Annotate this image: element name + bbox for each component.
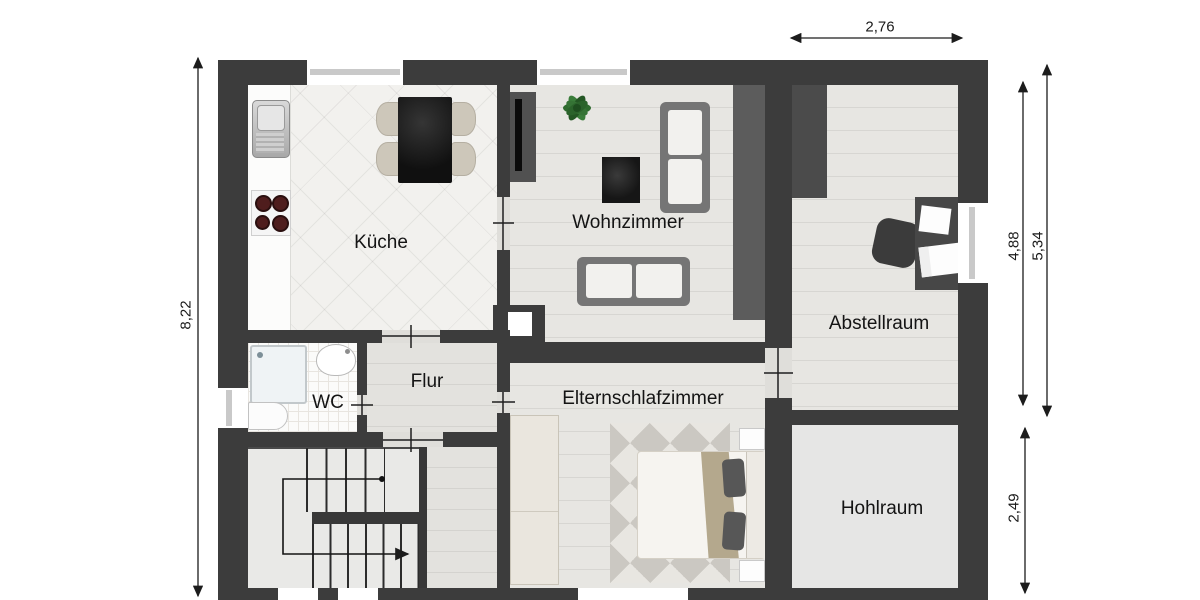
desk xyxy=(915,197,958,290)
window xyxy=(578,588,688,600)
wall-left xyxy=(218,60,248,600)
wall-unit xyxy=(733,85,765,320)
dimension-label-right-outer: 5,34 xyxy=(1030,231,1047,260)
wall-schlafzimmer-nord xyxy=(510,342,765,363)
staircase-landing-wall xyxy=(312,512,420,524)
paper xyxy=(919,205,952,234)
burner xyxy=(272,215,289,232)
wall-wc-sued xyxy=(218,432,510,447)
wall-kueche-sued xyxy=(248,330,497,343)
stove-cooktop xyxy=(251,190,291,236)
door-flur-treppe xyxy=(383,432,443,447)
wall-niche xyxy=(508,312,532,336)
dimension-label-right-bottom: 2,49 xyxy=(1006,493,1023,522)
dimension-label-right-inner: 4,88 xyxy=(1006,231,1023,260)
sofa xyxy=(660,102,710,213)
wall-right xyxy=(958,60,988,600)
coffee-table xyxy=(602,157,640,203)
window-sill xyxy=(969,207,975,279)
tv xyxy=(515,99,522,171)
room-label-flur: Flur xyxy=(411,371,444,393)
dimension-label-top: 2,76 xyxy=(865,19,894,36)
sofa-cushion xyxy=(586,264,632,298)
wall-wc-flur xyxy=(357,343,367,432)
pillow xyxy=(722,458,747,497)
nightstand xyxy=(739,560,765,582)
storage-closet xyxy=(792,82,827,198)
staircase-upper-flight xyxy=(306,448,385,512)
toilet xyxy=(248,402,288,430)
burner xyxy=(255,195,272,212)
door-flur-schlafzimmer xyxy=(497,392,510,413)
sink-drainboard xyxy=(256,133,284,153)
window xyxy=(218,388,248,428)
wall-hohlraum-nord xyxy=(792,410,958,425)
window xyxy=(338,588,378,600)
lower-hall-floor xyxy=(427,447,497,588)
dimension-label-left: 8,22 xyxy=(178,300,195,329)
double-bed xyxy=(637,451,765,559)
door-schlafzimmer-abstellraum xyxy=(765,348,792,398)
door-kueche-wohnzimmer xyxy=(497,197,510,250)
staircase-side-wall xyxy=(419,447,427,588)
wall-wohnzimmer-abstellraum xyxy=(765,60,792,600)
dining-table xyxy=(398,97,452,183)
dining-chair xyxy=(450,142,476,176)
window-sill xyxy=(226,390,232,426)
tv-sideboard xyxy=(508,92,536,182)
room-label-kueche: Küche xyxy=(354,232,408,254)
door-wc-flur xyxy=(357,395,367,415)
pillow xyxy=(722,511,747,550)
washbasin xyxy=(316,344,356,376)
headboard xyxy=(746,452,765,558)
floor-plan: Küche Wohnzimmer Abstellraum Flur WC Elt… xyxy=(0,0,1200,600)
basin-faucet xyxy=(345,349,350,354)
window-sill xyxy=(310,69,400,75)
sofa-cushion xyxy=(668,159,702,204)
room-label-elternschlafzimmer: Elternschlafzimmer xyxy=(562,388,724,410)
wall-flur-schlafzimmer xyxy=(497,330,510,588)
sink-basin xyxy=(257,105,285,131)
window-sill xyxy=(540,69,627,75)
burner xyxy=(272,195,289,212)
door-kueche-flur xyxy=(382,330,440,343)
wardrobe-divider xyxy=(511,511,558,512)
nightstand xyxy=(739,428,765,450)
room-label-hohlraum: Hohlraum xyxy=(841,498,923,520)
room-label-abstellraum: Abstellraum xyxy=(829,313,929,335)
room-label-wohnzimmer: Wohnzimmer xyxy=(572,212,684,234)
window xyxy=(278,588,318,600)
sofa xyxy=(577,257,690,306)
paper xyxy=(918,243,963,278)
shower-head xyxy=(257,352,263,358)
dining-chair xyxy=(450,102,476,136)
wardrobe xyxy=(510,415,559,585)
room-label-wc: WC xyxy=(312,392,344,414)
burner xyxy=(255,215,270,230)
staircase-lower-flight xyxy=(312,524,419,588)
sofa-cushion xyxy=(636,264,682,298)
kitchen-sink xyxy=(252,100,290,158)
shower xyxy=(250,345,307,404)
sofa-cushion xyxy=(668,110,702,155)
